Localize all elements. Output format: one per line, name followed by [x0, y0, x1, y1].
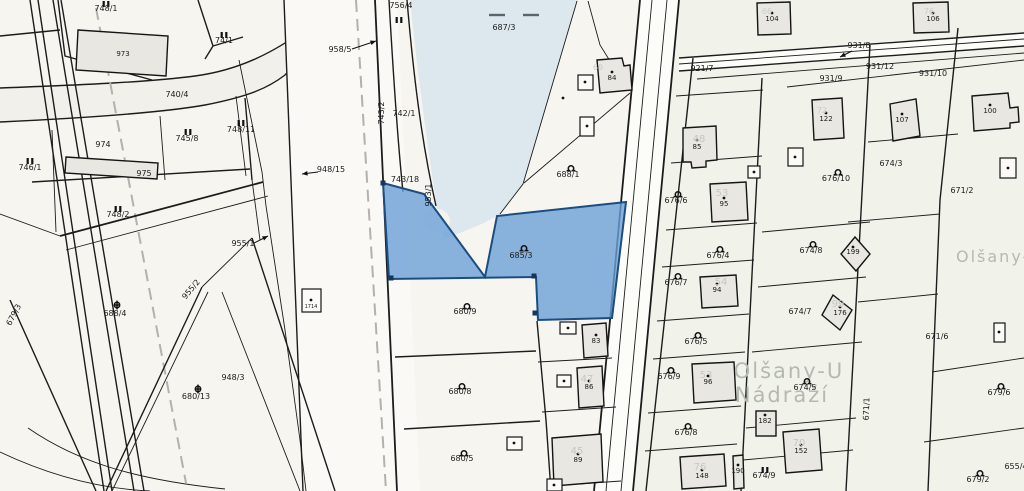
dot-symbol	[611, 71, 614, 74]
dot-symbol	[553, 484, 556, 487]
map-label: 89	[574, 456, 583, 464]
map-label: 671/1	[862, 397, 872, 420]
map-label: 655/4	[1004, 462, 1024, 471]
map-label: 921/7	[690, 64, 713, 73]
map-label: 679/6	[987, 388, 1010, 397]
map-label: 176	[833, 309, 847, 317]
map-label: 674/8	[799, 246, 822, 255]
map-label: 687/3	[492, 23, 515, 32]
map-label: 676/5	[684, 337, 707, 346]
dot-symbol	[595, 334, 598, 337]
map-label: 676/4	[706, 251, 729, 260]
map-label: 756/4	[389, 1, 412, 10]
dot-symbol	[513, 442, 516, 445]
map-label: 54	[715, 277, 728, 288]
map-label: 743/18	[391, 175, 419, 184]
dot-symbol	[310, 299, 313, 302]
map-label: 973	[116, 50, 129, 58]
map-label: 83	[592, 337, 601, 345]
map-label: 680/13	[182, 392, 210, 401]
cadastral-map-viewport[interactable]: Olšany-UNádražíOlšany-u nád 748/1973740/…	[0, 0, 1024, 491]
map-label: 70	[793, 438, 806, 449]
map-label: 69	[593, 63, 603, 72]
dot-symbol	[901, 113, 904, 116]
placename: Olšany-u nád	[956, 247, 1024, 266]
map-label: 99	[832, 299, 845, 310]
map-label: 676/10	[822, 174, 850, 183]
map-label: 72	[817, 106, 827, 115]
map-label: 76	[694, 462, 707, 473]
parcel-vertex-marker	[533, 311, 538, 316]
map-label: 742/1	[392, 109, 415, 118]
map-label: 674/9	[752, 471, 775, 480]
map-label: 955/1	[231, 239, 254, 248]
map-label: 95	[720, 200, 729, 208]
map-label: 676/7	[664, 278, 687, 287]
parcel-vertex-marker	[532, 274, 537, 279]
map-label: 100	[983, 107, 996, 115]
map-label: 676/6	[664, 196, 687, 205]
dot-symbol	[562, 97, 565, 100]
map-label: 748/11	[227, 125, 255, 134]
map-label: 746/1	[18, 163, 41, 172]
cadastral-map-canvas[interactable]: Olšany-UNádražíOlšany-u nád 748/1973740/…	[0, 0, 1024, 491]
map-label: 748/2	[106, 210, 129, 219]
map-label: 958/5	[328, 45, 351, 54]
map-label: 674/5	[793, 383, 816, 392]
map-label: 45	[571, 446, 584, 457]
map-label: 685/3	[509, 251, 532, 260]
map-label: 48	[693, 134, 706, 145]
map-label: 671/2	[950, 186, 973, 195]
map-label: 122	[819, 115, 832, 123]
dot-symbol	[753, 171, 756, 174]
map-label: 53	[700, 370, 713, 381]
dot-symbol	[586, 125, 589, 128]
map-label: 84	[608, 74, 617, 82]
dot-symbol	[794, 156, 797, 159]
map-label: 182	[758, 417, 771, 425]
map-label: 190	[731, 467, 744, 475]
map-label: 107	[895, 116, 908, 124]
map-label: 66	[762, 7, 772, 16]
map-label: 680/8	[448, 387, 471, 396]
building-96	[692, 362, 736, 403]
dot-symbol	[998, 331, 1001, 334]
map-label: 974	[95, 140, 110, 149]
map-label: 47	[581, 374, 594, 385]
map-label: 53	[716, 188, 729, 199]
map-label: 931/12	[866, 62, 894, 71]
dot-symbol	[737, 464, 740, 467]
map-label: 676/9	[657, 372, 680, 381]
dot-symbol	[563, 380, 566, 383]
map-label: 674/7	[788, 307, 811, 316]
map-label: 671/6	[925, 332, 948, 341]
map-label: 745/8	[175, 134, 198, 143]
map-label: 931/8	[847, 41, 870, 50]
map-label: 199	[846, 248, 859, 256]
placename: Olšany-U	[734, 359, 845, 383]
map-label: 104	[765, 15, 779, 23]
map-label: 748/1	[94, 4, 117, 13]
map-label: 740/4	[165, 90, 188, 99]
parcel-vertex-marker	[381, 181, 386, 186]
map-label: 106	[926, 15, 940, 23]
map-label: 931/10	[919, 69, 947, 78]
map-label: 76	[924, 7, 934, 16]
dot-symbol	[1007, 167, 1010, 170]
dot-symbol	[567, 327, 570, 330]
map-label: 688/4	[103, 309, 126, 318]
map-label: 688/1	[556, 170, 579, 179]
map-label: 743/2	[377, 101, 386, 124]
map-label: 931/9	[819, 74, 842, 83]
dot-symbol	[764, 414, 767, 417]
map-label: 674/3	[879, 159, 902, 168]
map-label: 948/15	[317, 165, 345, 174]
map-label: 680/5	[450, 454, 473, 463]
dot-symbol	[989, 104, 992, 107]
dot-symbol	[584, 81, 587, 84]
map-label: 1714	[305, 304, 318, 310]
map-label: 948/3	[221, 373, 244, 382]
map-label: 148	[695, 472, 708, 480]
map-label: 679/2	[966, 475, 989, 484]
map-label: 953/1	[424, 183, 433, 206]
map-label: 74/1	[215, 36, 233, 45]
map-label: 676/8	[674, 428, 697, 437]
parcel-vertex-marker	[389, 276, 394, 281]
map-label: 975	[136, 169, 151, 178]
map-label: 680/9	[453, 307, 476, 316]
